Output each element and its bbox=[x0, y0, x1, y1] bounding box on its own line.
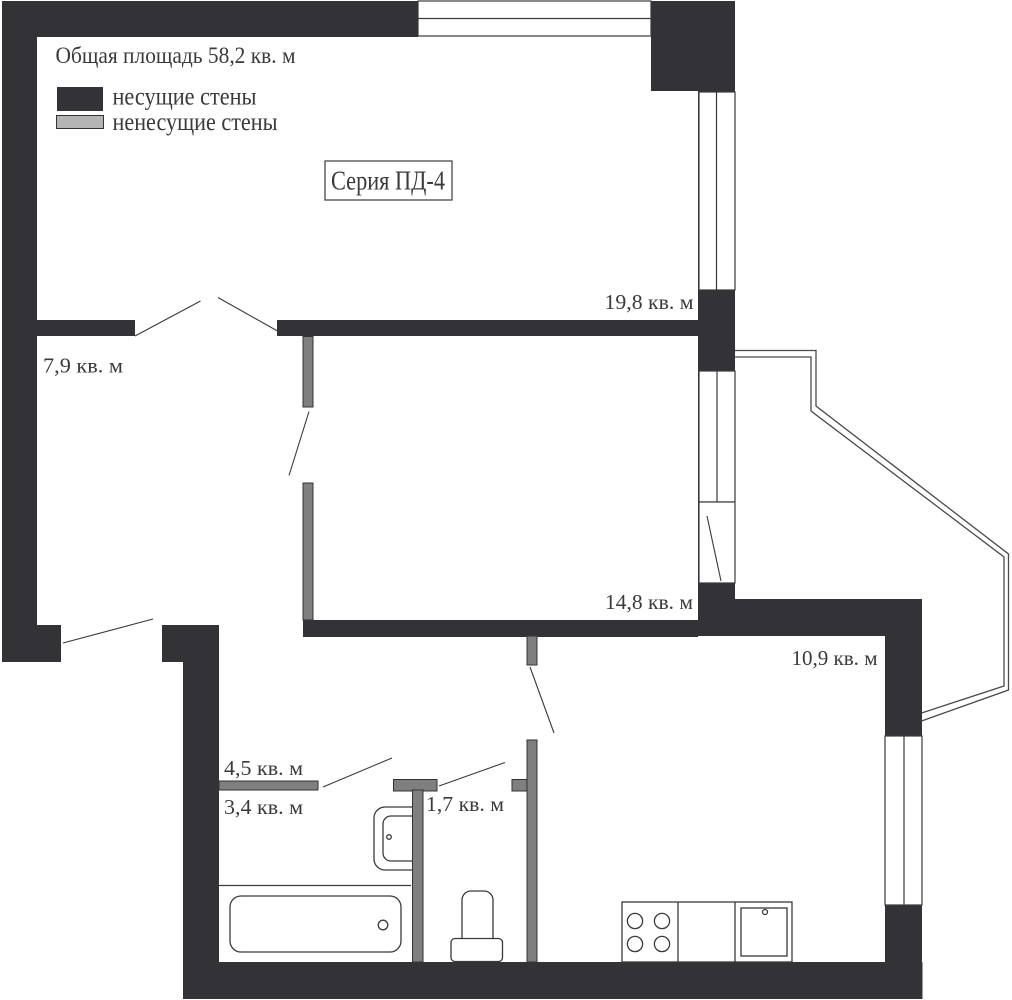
svg-text:19,8 кв. м: 19,8 кв. м bbox=[605, 290, 694, 314]
svg-text:7,9 кв. м: 7,9 кв. м bbox=[43, 354, 123, 378]
svg-text:3,4 кв. м: 3,4 кв. м bbox=[224, 795, 303, 819]
svg-text:14,8 кв. м: 14,8 кв. м bbox=[605, 590, 693, 614]
svg-text:1,7 кв. м: 1,7 кв. м bbox=[426, 792, 504, 816]
svg-text:ненесущие стены: ненесущие стены bbox=[113, 107, 278, 136]
svg-text:10,9 кв. м: 10,9 кв. м bbox=[792, 646, 878, 670]
svg-text:Общая площадь 58,2 кв. м: Общая площадь 58,2 кв. м bbox=[56, 43, 296, 68]
svg-text:4,5 кв. м: 4,5 кв. м bbox=[224, 756, 303, 780]
svg-text:Серия ПД-4: Серия ПД-4 bbox=[331, 166, 445, 196]
